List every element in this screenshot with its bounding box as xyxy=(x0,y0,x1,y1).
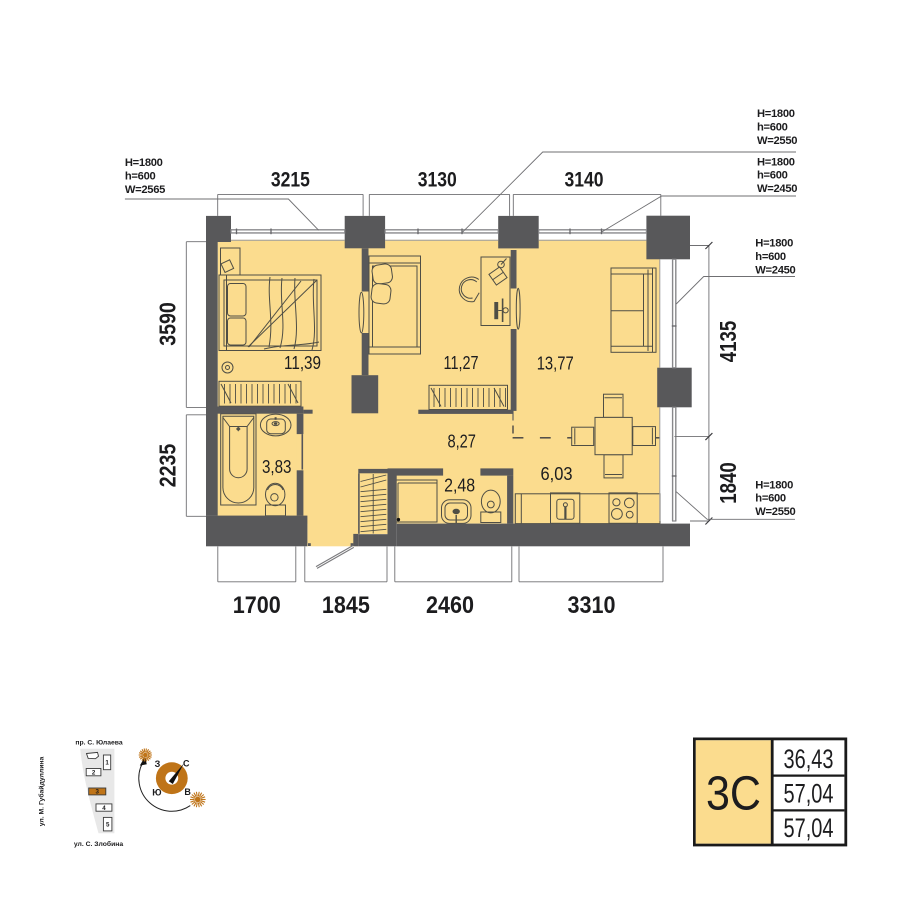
svg-text:5: 5 xyxy=(106,821,110,828)
svg-text:3130: 3130 xyxy=(418,169,457,192)
svg-text:W=2450: W=2450 xyxy=(757,183,797,195)
svg-text:57,04: 57,04 xyxy=(784,779,834,809)
svg-text:W=2550: W=2550 xyxy=(757,135,797,147)
svg-text:36,43: 36,43 xyxy=(784,744,834,774)
svg-text:3С: 3С xyxy=(706,767,761,821)
svg-text:H=1800: H=1800 xyxy=(757,108,795,120)
svg-text:4135: 4135 xyxy=(715,321,741,363)
svg-text:3: 3 xyxy=(95,789,99,796)
svg-text:6,03: 6,03 xyxy=(541,464,573,484)
svg-text:3310: 3310 xyxy=(568,592,616,619)
svg-text:8,27: 8,27 xyxy=(447,432,476,452)
svg-text:H=1800: H=1800 xyxy=(755,238,793,250)
svg-text:h=600: h=600 xyxy=(755,251,786,263)
svg-text:1840: 1840 xyxy=(715,462,741,504)
svg-text:h=600: h=600 xyxy=(757,170,788,182)
svg-text:11,39: 11,39 xyxy=(284,353,321,373)
svg-text:3,83: 3,83 xyxy=(262,457,292,477)
svg-text:2: 2 xyxy=(92,769,96,776)
svg-text:2235: 2235 xyxy=(155,444,181,488)
svg-text:3590: 3590 xyxy=(155,302,181,346)
svg-text:h=600: h=600 xyxy=(757,121,788,133)
svg-text:H=1800: H=1800 xyxy=(125,157,163,169)
svg-text:З: З xyxy=(155,759,161,769)
svg-text:2460: 2460 xyxy=(426,592,474,619)
svg-text:13,77: 13,77 xyxy=(537,353,574,373)
svg-text:57,04: 57,04 xyxy=(784,813,834,843)
svg-text:h=600: h=600 xyxy=(125,170,156,182)
svg-text:3215: 3215 xyxy=(271,169,310,192)
svg-text:пр. С. Юлаева: пр. С. Юлаева xyxy=(75,739,123,746)
svg-text:1: 1 xyxy=(105,760,109,767)
svg-text:W=2550: W=2550 xyxy=(755,506,795,518)
svg-text:3140: 3140 xyxy=(565,169,604,192)
svg-text:Ю: Ю xyxy=(152,788,161,798)
svg-text:1845: 1845 xyxy=(322,592,370,619)
svg-text:h=600: h=600 xyxy=(755,493,786,505)
svg-text:4: 4 xyxy=(102,805,106,812)
svg-text:W=2565: W=2565 xyxy=(125,184,165,196)
svg-text:1700: 1700 xyxy=(233,592,281,619)
svg-text:С: С xyxy=(183,758,190,768)
svg-text:H=1800: H=1800 xyxy=(757,156,795,168)
svg-text:ул. М. Губайдуллина: ул. М. Губайдуллина xyxy=(38,757,46,827)
svg-text:H=1800: H=1800 xyxy=(755,479,793,491)
svg-text:2,48: 2,48 xyxy=(444,476,475,496)
svg-text:11,27: 11,27 xyxy=(444,353,479,373)
svg-text:W=2450: W=2450 xyxy=(755,264,795,276)
svg-text:ул. С. Злобина: ул. С. Злобина xyxy=(74,840,124,848)
svg-text:В: В xyxy=(184,787,191,797)
